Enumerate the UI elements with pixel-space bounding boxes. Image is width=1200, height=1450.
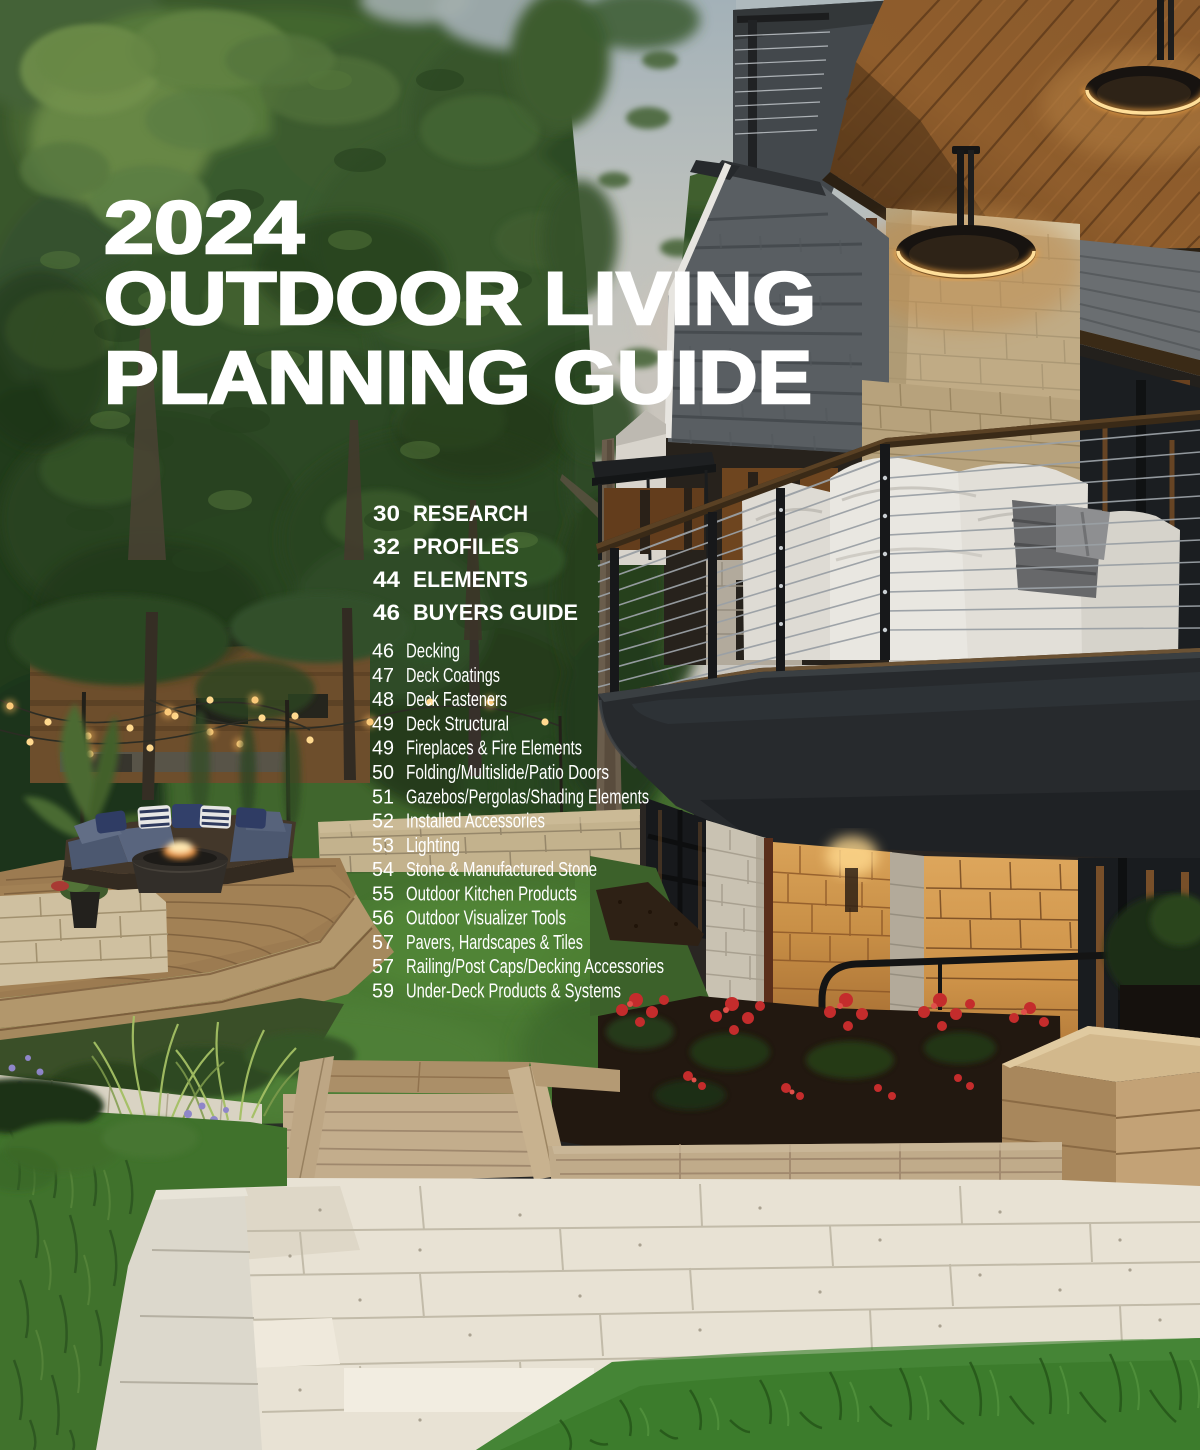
svg-text:ELEMENTS: ELEMENTS <box>413 567 528 592</box>
svg-text:Lighting: Lighting <box>406 835 460 857</box>
svg-text:46: 46 <box>372 641 394 663</box>
svg-text:Deck Coatings: Deck Coatings <box>406 665 500 687</box>
svg-text:PLANNING GUIDE: PLANNING GUIDE <box>104 336 812 419</box>
svg-text:57: 57 <box>372 956 394 978</box>
svg-text:47: 47 <box>372 665 394 687</box>
svg-text:49: 49 <box>372 713 394 735</box>
svg-text:56: 56 <box>372 908 394 930</box>
svg-text:51: 51 <box>372 786 394 808</box>
svg-text:44: 44 <box>373 567 401 592</box>
svg-text:Railing/Post Caps/Decking Acce: Railing/Post Caps/Decking Accessories <box>406 956 664 978</box>
svg-text:Deck Fasteners: Deck Fasteners <box>406 689 507 711</box>
svg-text:Under-Deck Products & Systems: Under-Deck Products & Systems <box>406 981 621 1003</box>
svg-text:Fireplaces & Fire Elements: Fireplaces & Fire Elements <box>406 738 582 760</box>
svg-text:30: 30 <box>373 501 400 526</box>
svg-text:48: 48 <box>372 689 394 711</box>
svg-text:54: 54 <box>372 859 394 881</box>
svg-text:57: 57 <box>372 932 394 954</box>
svg-text:Decking: Decking <box>406 641 460 663</box>
svg-text:PROFILES: PROFILES <box>413 534 519 559</box>
svg-text:Deck Structural: Deck Structural <box>406 713 509 735</box>
svg-text:Gazebos/Pergolas/Shading Eleme: Gazebos/Pergolas/Shading Elements <box>406 786 649 808</box>
svg-text:59: 59 <box>372 981 394 1003</box>
svg-text:BUYERS GUIDE: BUYERS GUIDE <box>413 600 578 625</box>
svg-text:Outdoor Visualizer Tools: Outdoor Visualizer Tools <box>406 908 566 930</box>
svg-text:50: 50 <box>372 762 394 784</box>
svg-text:OUTDOOR LIVING: OUTDOOR LIVING <box>104 257 816 340</box>
svg-text:53: 53 <box>372 835 394 857</box>
svg-text:32: 32 <box>373 534 400 559</box>
svg-text:RESEARCH: RESEARCH <box>413 501 528 526</box>
svg-text:Stone & Manufactured Stone: Stone & Manufactured Stone <box>406 859 597 881</box>
svg-text:49: 49 <box>372 738 394 760</box>
svg-text:46: 46 <box>373 600 400 625</box>
svg-text:52: 52 <box>372 811 394 833</box>
svg-text:Outdoor Kitchen Products: Outdoor Kitchen Products <box>406 883 577 905</box>
svg-text:Pavers, Hardscapes & Tiles: Pavers, Hardscapes & Tiles <box>406 932 583 954</box>
svg-text:Folding/Multislide/Patio Doors: Folding/Multislide/Patio Doors <box>406 762 609 784</box>
svg-text:Installed Accessories: Installed Accessories <box>406 811 545 833</box>
svg-text:55: 55 <box>372 883 394 905</box>
